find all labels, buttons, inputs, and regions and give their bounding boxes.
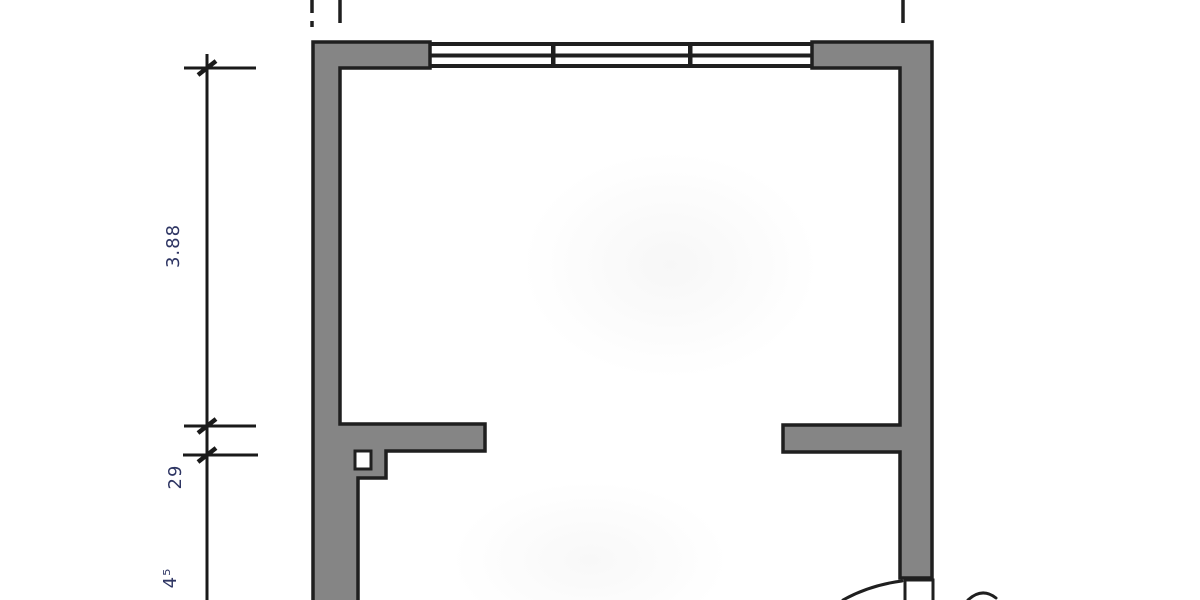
dimension-label-wall-return: 29 xyxy=(165,457,187,497)
dimension-label-room-depth: 3.88 xyxy=(163,206,185,286)
door-swing-arc xyxy=(843,581,902,600)
door-jamb-block xyxy=(905,580,933,600)
window-inner-line xyxy=(430,64,812,68)
door-swing-arc-fragment xyxy=(968,593,996,600)
window-outer-line xyxy=(430,42,812,46)
window-middle-line xyxy=(430,54,812,58)
dimension-label-partial: 4⁵ xyxy=(160,556,182,600)
wall-recess-square xyxy=(355,451,371,469)
window-mullion xyxy=(551,42,556,68)
floor-plan-drawing xyxy=(0,0,1200,600)
wall-right-structure xyxy=(783,42,932,578)
wall-left-structure xyxy=(313,42,485,600)
floor-plan-canvas: 3.88 29 4⁵ xyxy=(0,0,1200,600)
window-mullion xyxy=(688,42,693,68)
